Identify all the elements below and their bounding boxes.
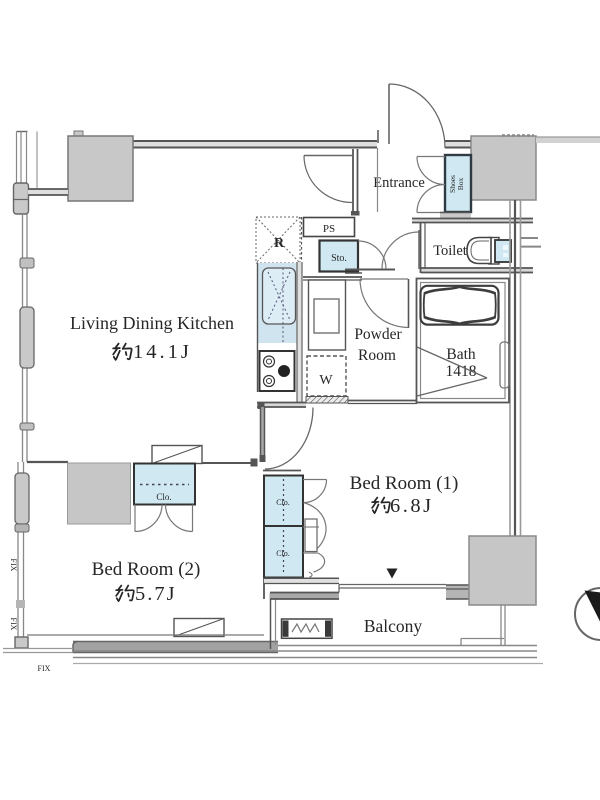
svg-text:PS: PS xyxy=(323,223,335,235)
svg-text:Bed Room (2): Bed Room (2) xyxy=(92,559,201,580)
svg-text:R: R xyxy=(274,236,285,251)
svg-text:Living Dining Kitchen: Living Dining Kitchen xyxy=(70,313,234,333)
svg-text:W: W xyxy=(319,373,333,388)
svg-text:Entrance: Entrance xyxy=(373,175,425,191)
svg-text:6.8J: 6.8J xyxy=(390,495,434,517)
svg-text:FIX: FIX xyxy=(9,618,18,631)
svg-text:FIX: FIX xyxy=(38,664,51,673)
svg-text:Bed Room (1): Bed Room (1) xyxy=(350,473,459,494)
svg-text:Toilet: Toilet xyxy=(433,243,467,259)
svg-text:14.1J: 14.1J xyxy=(133,341,192,363)
svg-text:Balcony: Balcony xyxy=(364,616,423,636)
svg-text:Box: Box xyxy=(456,178,465,191)
svg-text:Clo.: Clo. xyxy=(276,498,290,507)
svg-text:Clo.: Clo. xyxy=(276,549,290,558)
svg-text:Bath: Bath xyxy=(446,346,476,363)
svg-text:Sto.: Sto. xyxy=(331,253,347,264)
svg-text:FIX: FIX xyxy=(9,559,18,572)
svg-text:5.7J: 5.7J xyxy=(135,583,177,605)
svg-text:Room: Room xyxy=(358,347,396,364)
svg-text:Clo.: Clo. xyxy=(156,492,171,502)
svg-text:Powder: Powder xyxy=(354,326,402,343)
